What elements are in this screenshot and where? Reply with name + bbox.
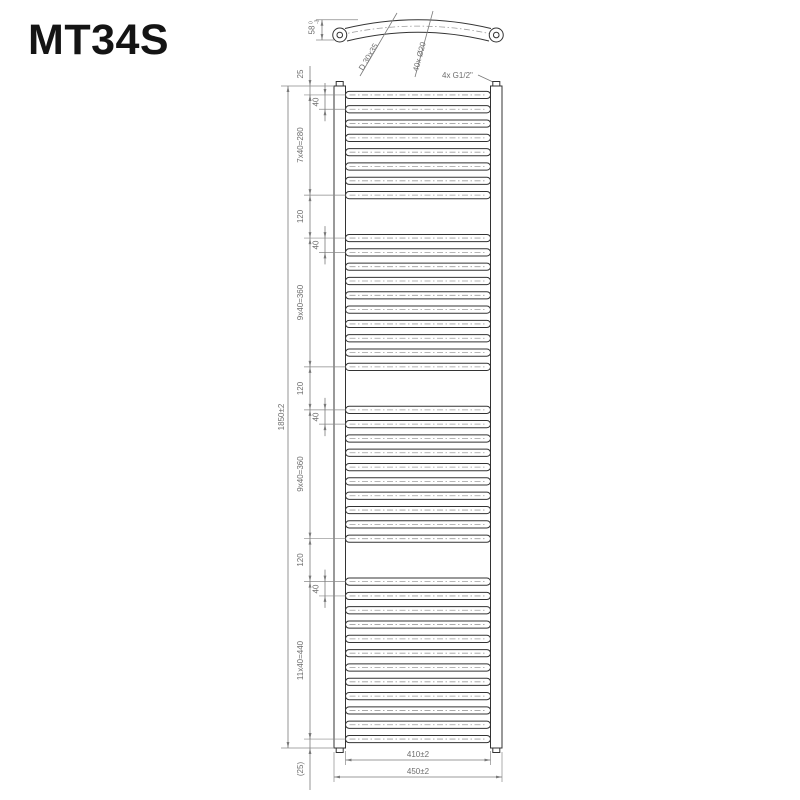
technical-drawing: 58 0 -3 D 30x35 40x Ø20 4x G1/2"	[0, 0, 800, 800]
dim-gap1: 120	[296, 209, 305, 223]
right-collector-tube	[491, 86, 503, 748]
drawing-sheet: MT34S 58 0 -3	[0, 0, 800, 800]
dim-arrow	[324, 404, 327, 410]
dim-arrow	[324, 89, 327, 95]
front-view	[334, 82, 502, 753]
dim-arrow	[324, 109, 327, 115]
left-tube-top-cap	[336, 82, 343, 87]
dim-pitch-3: 40	[312, 412, 321, 421]
overall-height-dimension: 1850±2	[277, 86, 334, 748]
dim-arrow	[324, 596, 327, 602]
dim-arrow	[309, 189, 312, 195]
dim-arrow	[324, 424, 327, 430]
dim-arrow	[309, 361, 312, 367]
right-tube-bottom-cap	[493, 748, 500, 753]
right-collector-bore	[493, 32, 499, 38]
dim-group1: 7x40=280	[296, 127, 305, 163]
dim-arrow	[309, 576, 312, 582]
dim-bottom-offset: (25)	[296, 762, 305, 777]
dimension-chain-labels: 25 7x40=280 120 9x40=360 120 9x40=360 12…	[296, 69, 321, 776]
outer-width-label: 450±2	[407, 767, 430, 776]
connection-callout: 4x G1/2"	[442, 71, 501, 86]
dim-arrow	[324, 252, 327, 258]
dim-arrow	[324, 576, 327, 582]
bottom-width-dimensions: 410±2 450±2	[334, 750, 502, 782]
connection-label: 4x G1/2"	[442, 71, 473, 80]
right-tube-top-cap	[493, 82, 500, 87]
dim-arrow	[309, 195, 312, 201]
dim-pitch-4: 40	[312, 584, 321, 593]
bow-tube-bottom-edge	[347, 32, 489, 41]
left-tube-bottom-cap	[336, 748, 343, 753]
rung-group	[346, 91, 491, 742]
dim-top-offset: 25	[296, 69, 305, 78]
top-view: 58 0 -3 D 30x35 40x Ø20	[308, 11, 504, 77]
tube-count-label: 40x Ø20	[411, 40, 428, 72]
bow-tube-top-edge	[345, 20, 491, 29]
bow-depth-tol-lower: -3	[315, 19, 321, 24]
dim-arrow	[309, 533, 312, 539]
dim-arrow	[324, 232, 327, 238]
left-collector-tube	[334, 86, 346, 748]
dim-group4: 11x40=440	[296, 640, 305, 680]
dim-arrow	[309, 539, 312, 545]
inner-width-label: 410±2	[407, 750, 430, 759]
dim-group3: 9x40=360	[296, 456, 305, 492]
dim-arrow	[309, 748, 312, 754]
dim-pitch-2: 40	[312, 240, 321, 249]
dim-gap2: 120	[296, 381, 305, 395]
dim-arrow	[309, 733, 312, 739]
left-collector-bore	[337, 32, 343, 38]
dim-pitch-1: 40	[312, 97, 321, 106]
tube-count-leader: 40x Ø20	[411, 11, 433, 77]
dim-arrow	[309, 367, 312, 373]
profile-label: D 30x35	[357, 41, 380, 72]
dim-gap3: 120	[296, 553, 305, 567]
dim-arrow	[309, 80, 312, 86]
bow-depth-value: 58	[308, 25, 317, 34]
bow-tube-centerline	[340, 26, 497, 35]
dim-arrow	[309, 232, 312, 238]
overall-height-label: 1850±2	[277, 403, 286, 430]
dim-arrow	[309, 404, 312, 410]
dim-group2: 9x40=360	[296, 284, 305, 320]
